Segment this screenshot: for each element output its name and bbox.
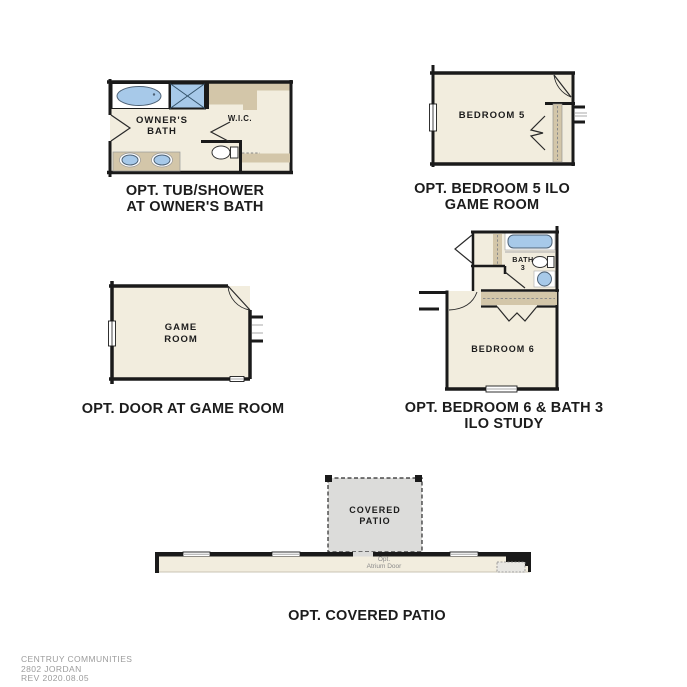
caption-bedroom5-line2: GAME ROOM xyxy=(414,198,570,214)
options-sheet: OWNER'S BATH W.I.C. OPT. TUB/SHOWER AT O… xyxy=(0,0,687,687)
plan-covered-patio: COVERED PATIO Opt. Atrium Door xyxy=(147,469,541,583)
vanity xyxy=(113,152,180,171)
atrium-door-note-2: Atrium Door xyxy=(367,563,403,570)
window-bottom xyxy=(486,386,517,392)
caption-covered-patio: OPT. COVERED PATIO xyxy=(288,609,446,625)
atrium-door-opening xyxy=(353,552,373,557)
bedroom6-bath3-drawing: BATH 3 BEDROOM 6 xyxy=(419,217,571,399)
opt-feature-right xyxy=(497,562,525,572)
atrium-door-note-1: Opt. xyxy=(378,556,390,563)
game-room-label-1: GAME xyxy=(165,322,198,333)
plan-game-room: GAME ROOM xyxy=(94,277,274,399)
window-bottom xyxy=(230,377,244,382)
patio-label-2: PATIO xyxy=(359,516,390,526)
owners-bath-label-2: BATH xyxy=(147,126,177,137)
footer-revision: REV 2020.08.05 xyxy=(21,674,132,684)
caption-owners-bath-line2: AT OWNER'S BATH xyxy=(126,200,264,216)
caption-bedroom6-bath3: OPT. BEDROOM 6 & BATH 3 ILO STUDY xyxy=(405,401,604,432)
plan-owners-bath: OWNER'S BATH W.I.C. xyxy=(90,62,302,182)
linen-closet xyxy=(493,234,502,265)
tub xyxy=(117,87,161,106)
caption-bedroom6-line2: ILO STUDY xyxy=(405,417,604,433)
wall-cap-left xyxy=(155,552,159,573)
caption-covered-patio-line1: OPT. COVERED PATIO xyxy=(288,609,446,625)
shower xyxy=(170,84,205,109)
caption-bedroom5: OPT. BEDROOM 5 ILO GAME ROOM xyxy=(414,182,570,213)
caption-bedroom6-line1: OPT. BEDROOM 6 & BATH 3 xyxy=(405,401,604,417)
caption-owners-bath: OPT. TUB/SHOWER AT OWNER'S BATH xyxy=(126,184,264,215)
caption-game-room: OPT. DOOR AT GAME ROOM xyxy=(82,402,285,418)
caption-owners-bath-line1: OPT. TUB/SHOWER xyxy=(126,184,264,200)
bedroom5-drawing: BEDROOM 5 xyxy=(424,52,596,176)
patio-post-left xyxy=(325,475,332,482)
sink xyxy=(534,271,555,287)
window-left xyxy=(430,104,437,131)
hall-closet-band xyxy=(481,292,557,305)
interior-floor-strip xyxy=(157,557,528,573)
window-left xyxy=(109,321,116,346)
bedroom5-label: BEDROOM 5 xyxy=(459,110,526,121)
toilet xyxy=(533,257,555,268)
caption-bedroom5-line1: OPT. BEDROOM 5 ILO xyxy=(414,182,570,198)
patio-post-right xyxy=(415,475,422,482)
bath3-label-2: 3 xyxy=(521,263,526,272)
sink-right xyxy=(154,155,170,165)
bedroom6-label: BEDROOM 6 xyxy=(471,344,535,354)
title-block: CENTRUY COMMUNITIES 2802 JORDAN REV 2020… xyxy=(21,655,132,684)
wic-shelf xyxy=(242,154,290,163)
patio-slab xyxy=(328,478,422,552)
tub xyxy=(505,233,555,252)
patio-label-1: COVERED xyxy=(349,505,401,515)
closet-door xyxy=(455,235,472,263)
owners-bath-label-1: OWNER'S xyxy=(136,115,188,126)
wall-divider xyxy=(205,82,209,109)
wic-label: W.I.C. xyxy=(228,114,252,123)
wall-cap-right xyxy=(528,552,531,572)
sink-left xyxy=(122,155,138,165)
covered-patio-drawing: COVERED PATIO Opt. Atrium Door xyxy=(147,469,541,583)
plan-bedroom6-bath3: BATH 3 BEDROOM 6 xyxy=(419,217,571,399)
toilet xyxy=(212,146,238,159)
owners-bath-drawing: OWNER'S BATH W.I.C. xyxy=(90,62,302,182)
game-room-floor xyxy=(112,286,250,380)
tub-drain xyxy=(153,93,155,95)
game-room-label-2: ROOM xyxy=(164,334,198,345)
plan-bedroom5: BEDROOM 5 xyxy=(424,52,596,176)
caption-game-room-line1: OPT. DOOR AT GAME ROOM xyxy=(82,402,285,418)
game-room-drawing: GAME ROOM xyxy=(94,277,274,399)
